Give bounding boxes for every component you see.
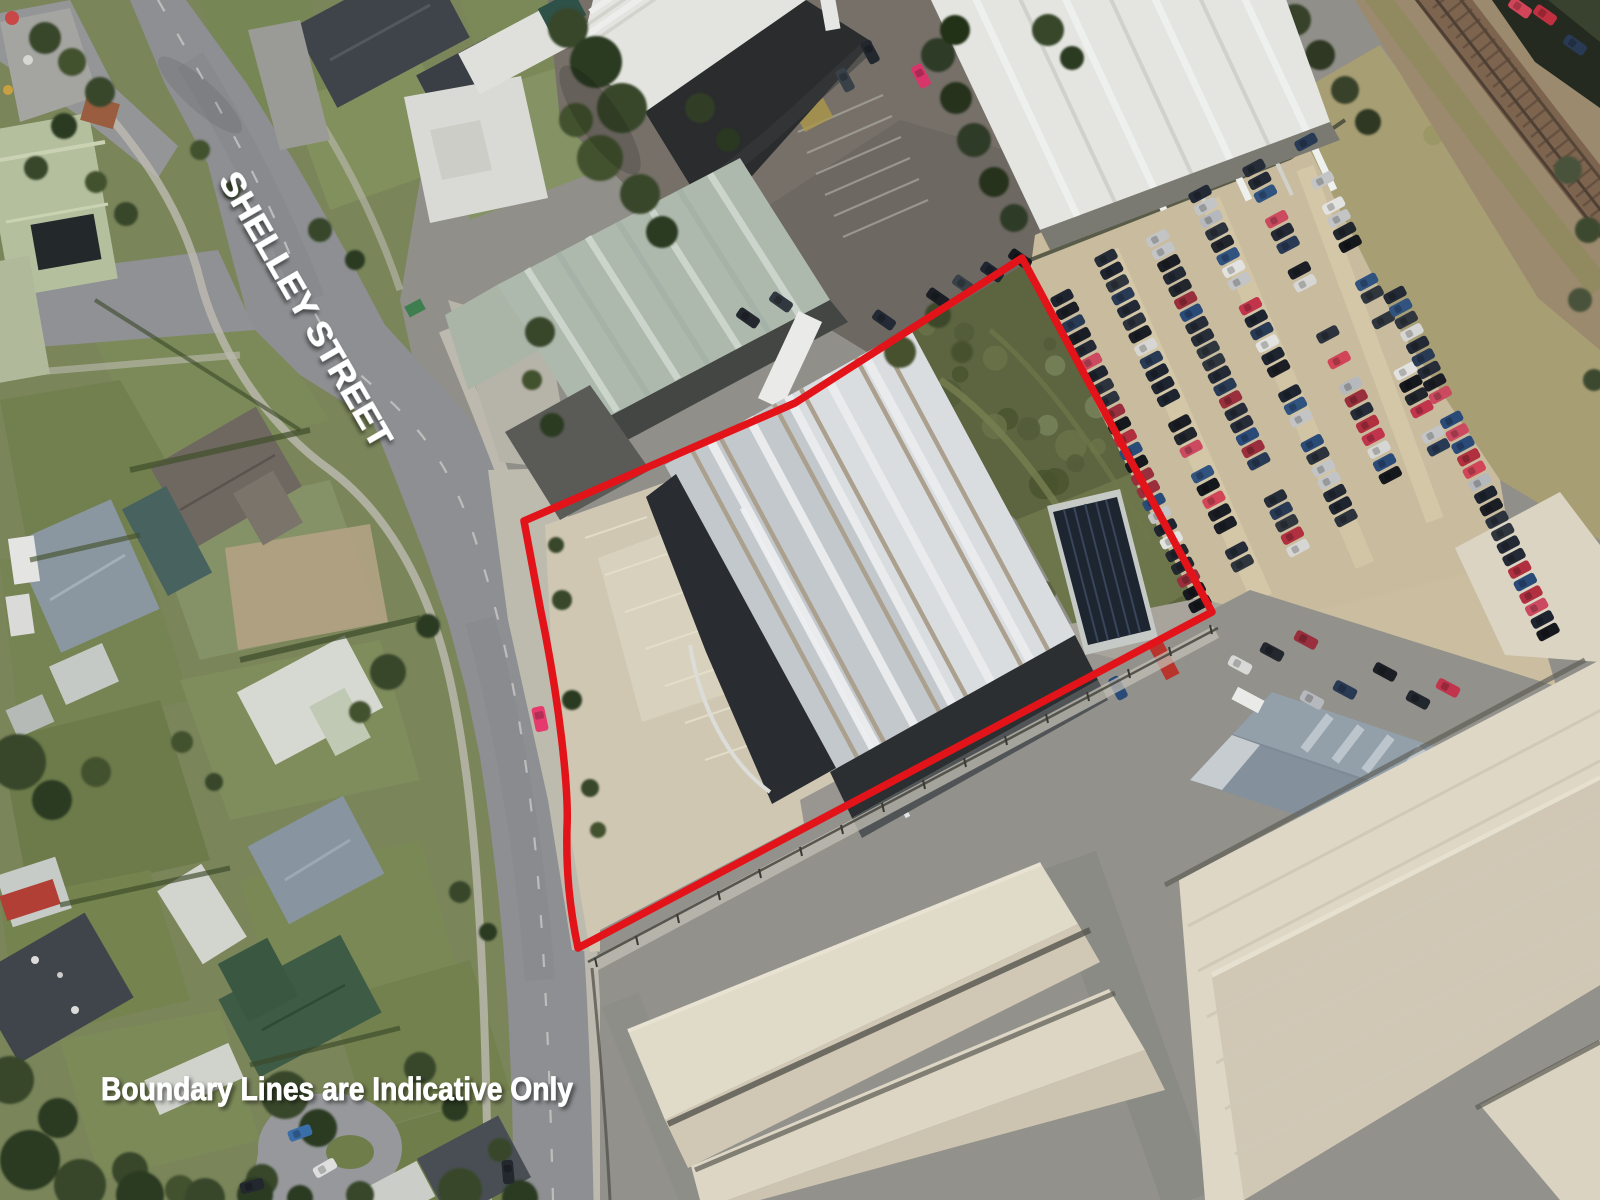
svg-text:Boundary Lines are Indicative: Boundary Lines are Indicative Only bbox=[101, 1071, 573, 1107]
